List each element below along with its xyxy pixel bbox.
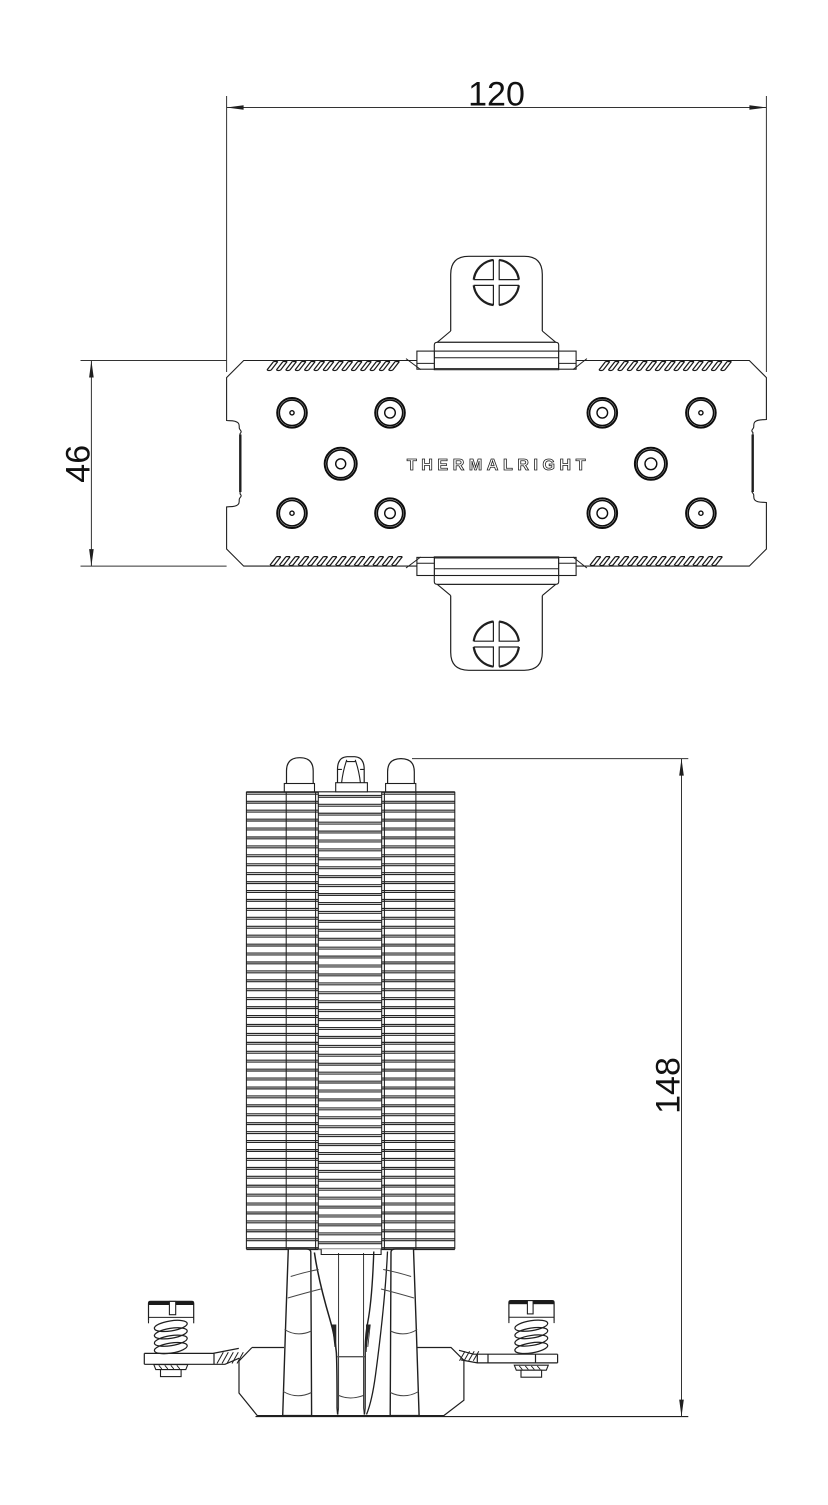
svg-text:THERMALRIGHT: THERMALRIGHT bbox=[407, 457, 590, 474]
svg-text:46: 46 bbox=[60, 445, 98, 483]
svg-text:148: 148 bbox=[650, 1057, 688, 1114]
svg-text:120: 120 bbox=[468, 76, 525, 114]
